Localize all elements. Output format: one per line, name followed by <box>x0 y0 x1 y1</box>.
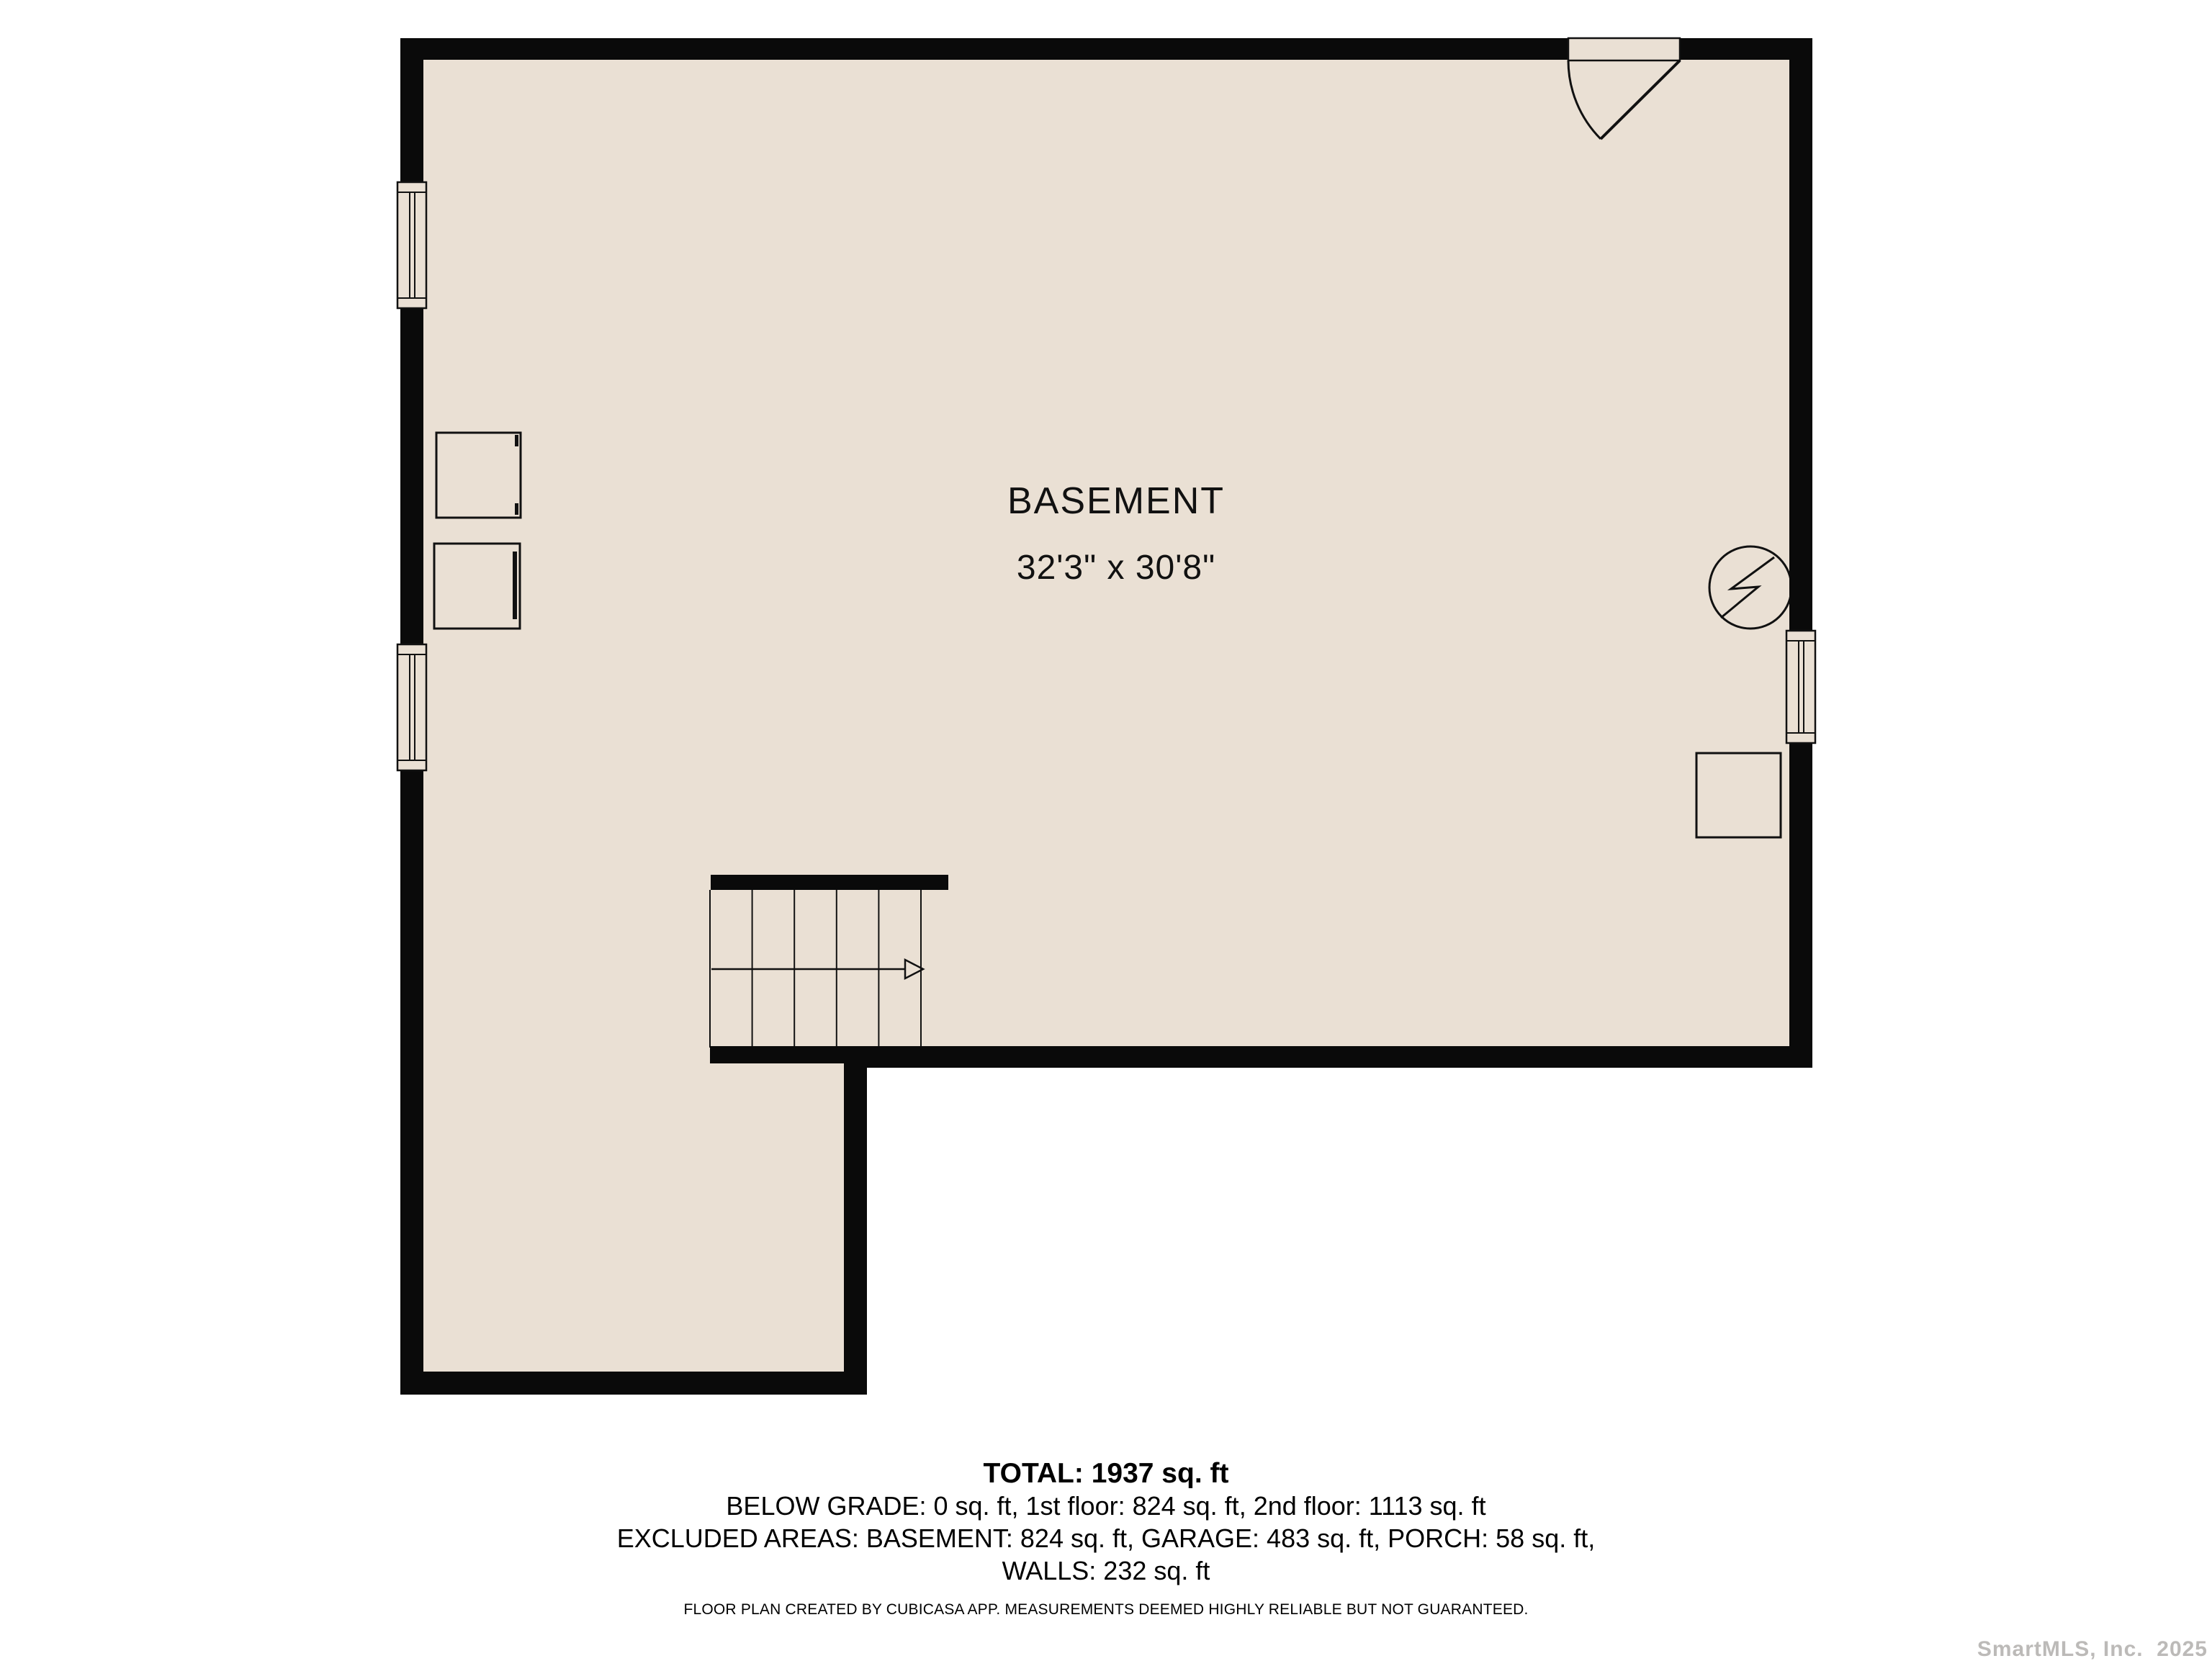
window-frame <box>1786 631 1815 743</box>
stair-top-wall <box>711 875 948 890</box>
area-summary: TOTAL: 1937 sq. ft BELOW GRADE: 0 sq. ft… <box>0 1457 2212 1587</box>
below-grade-line: BELOW GRADE: 0 sq. ft, 1st floor: 824 sq… <box>0 1490 2212 1522</box>
room-label: BASEMENT <box>1007 480 1225 522</box>
window-left-upper <box>397 182 426 308</box>
walls-area-line: WALLS: 232 sq. ft <box>0 1554 2212 1587</box>
window-left-lower <box>397 644 426 770</box>
window-frame <box>397 644 426 770</box>
appliance-2-door-bar <box>513 552 517 619</box>
appliance-1-handle-top <box>515 435 518 446</box>
room-dimensions: 32'3" x 30'8" <box>1017 549 1215 587</box>
appliance-1-handle-bottom <box>515 503 518 515</box>
disclaimer-text: FLOOR PLAN CREATED BY CUBICASA APP. MEAS… <box>0 1601 2212 1619</box>
window-frame <box>397 182 426 308</box>
door-panel <box>1568 38 1680 60</box>
floor-plan: BASEMENT 32'3" x 30'8" <box>0 0 2212 1659</box>
window-right <box>1786 631 1815 743</box>
floor-area <box>423 60 1789 1372</box>
excluded-areas-line: EXCLUDED AREAS: BASEMENT: 824 sq. ft, GA… <box>0 1522 2212 1554</box>
watermark-text: SmartMLS, Inc. 2025 <box>1977 1639 2208 1660</box>
total-area-line: TOTAL: 1937 sq. ft <box>0 1457 2212 1490</box>
